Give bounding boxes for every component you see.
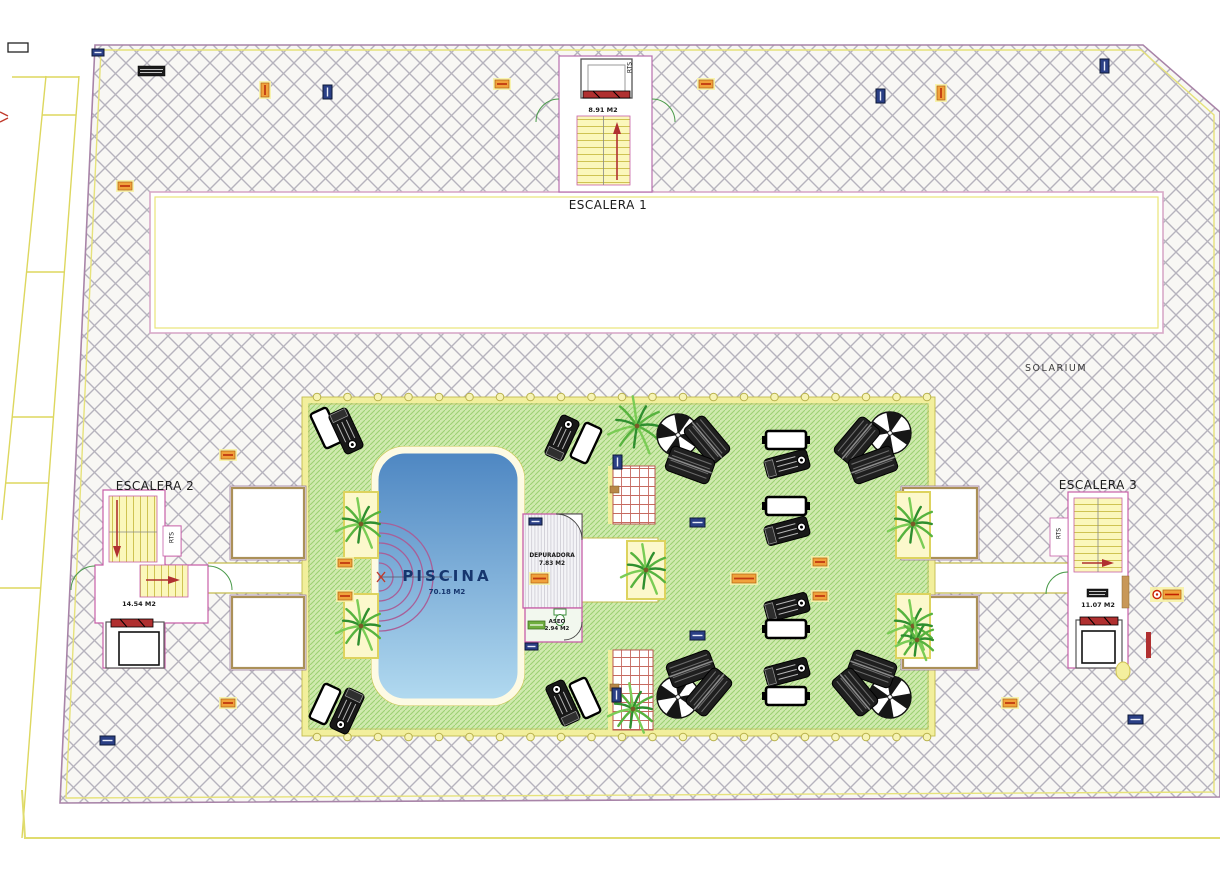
tag-navy-v-icon	[876, 89, 885, 103]
tag-navy-v-icon	[323, 85, 332, 99]
vent-marker	[1116, 662, 1130, 680]
elevator-icon	[581, 59, 632, 98]
tag-orange-h-icon	[730, 572, 758, 585]
tag-navy-h-icon	[529, 518, 542, 525]
tag-black-icon	[138, 66, 165, 76]
solarium-label: SOLARIUM	[1008, 363, 1104, 374]
table-icon	[762, 620, 810, 638]
tag-navy-v-icon	[1100, 59, 1109, 73]
escalera1-label: ESCALERA 1	[543, 198, 673, 212]
tag-orange-h-icon	[1001, 697, 1019, 709]
tag-navy-h-icon	[690, 631, 705, 640]
tag-navy-h-icon	[525, 643, 538, 650]
pool-area: 70.18 M2	[382, 588, 512, 596]
corridor-west	[208, 563, 306, 593]
elevator-icon	[1076, 617, 1122, 668]
escalera1-area: 8.91 M2	[571, 106, 635, 114]
tag-orange-v-icon	[259, 81, 271, 99]
tag-white-icon	[8, 43, 28, 52]
planter-court	[230, 595, 306, 670]
tag-red-tick-icon	[0, 112, 8, 122]
tag-orange-h-icon	[811, 590, 829, 602]
table-icon	[762, 431, 810, 449]
tag-navy-h-icon	[1128, 715, 1143, 724]
depuradora-area: 7.83 M2	[520, 561, 584, 567]
tag-navy-v-icon	[613, 455, 622, 469]
escalera3-label: ESCALERA 3	[1037, 478, 1159, 492]
tag-orange-h-icon	[697, 78, 715, 90]
building-void	[150, 192, 1163, 333]
depuradora-label: DEPURADORA	[520, 553, 584, 559]
stair-flight	[577, 116, 630, 185]
escalera3-rts: RTS	[1056, 521, 1063, 547]
tag-navy-v-icon	[612, 688, 621, 702]
stair-flight	[1074, 498, 1122, 572]
table-icon	[762, 687, 810, 705]
escalera2-area: 14.54 M2	[107, 600, 171, 608]
red-bar-marker	[1146, 632, 1151, 658]
escalera1-rts: RTS	[627, 55, 634, 81]
corridor-east	[930, 563, 1068, 593]
planter-court	[230, 486, 306, 560]
tag-orange-h-icon	[811, 556, 829, 568]
tag-orange-dot-icon	[1150, 587, 1184, 602]
tag-orange-h-icon	[336, 557, 354, 569]
tag-orange-h-icon	[529, 572, 550, 585]
escalera2-rts: RTS	[169, 525, 176, 551]
aseo-label: ASEO	[531, 619, 583, 625]
aseo-area: 2.94 M2	[531, 626, 583, 632]
tag-navy-h-icon	[92, 49, 104, 56]
tag-navy-h-icon	[690, 518, 705, 527]
pool-label: PISCINA	[382, 567, 512, 585]
tag-orange-h-icon	[219, 449, 237, 461]
tag-orange-v-icon	[935, 84, 947, 102]
tag-orange-h-icon	[219, 697, 237, 709]
table-icon	[762, 497, 810, 515]
tag-orange-h-icon	[116, 180, 134, 192]
site-plan-drawing	[0, 0, 1220, 870]
site-plan-page: ESCALERA 1 8.91 M2 RTS ESCALERA 2 14.54 …	[0, 0, 1220, 870]
tag-orange-h-icon	[493, 78, 511, 90]
tag-orange-h-icon	[336, 590, 354, 602]
tag-navy-h-icon	[100, 736, 115, 745]
escalera2-label: ESCALERA 2	[95, 479, 215, 493]
escalera3-area: 11.07 M2	[1066, 601, 1130, 609]
elevator-icon	[106, 619, 164, 668]
exterior-stair-north	[608, 466, 655, 524]
tag-black-icon	[1087, 589, 1108, 597]
